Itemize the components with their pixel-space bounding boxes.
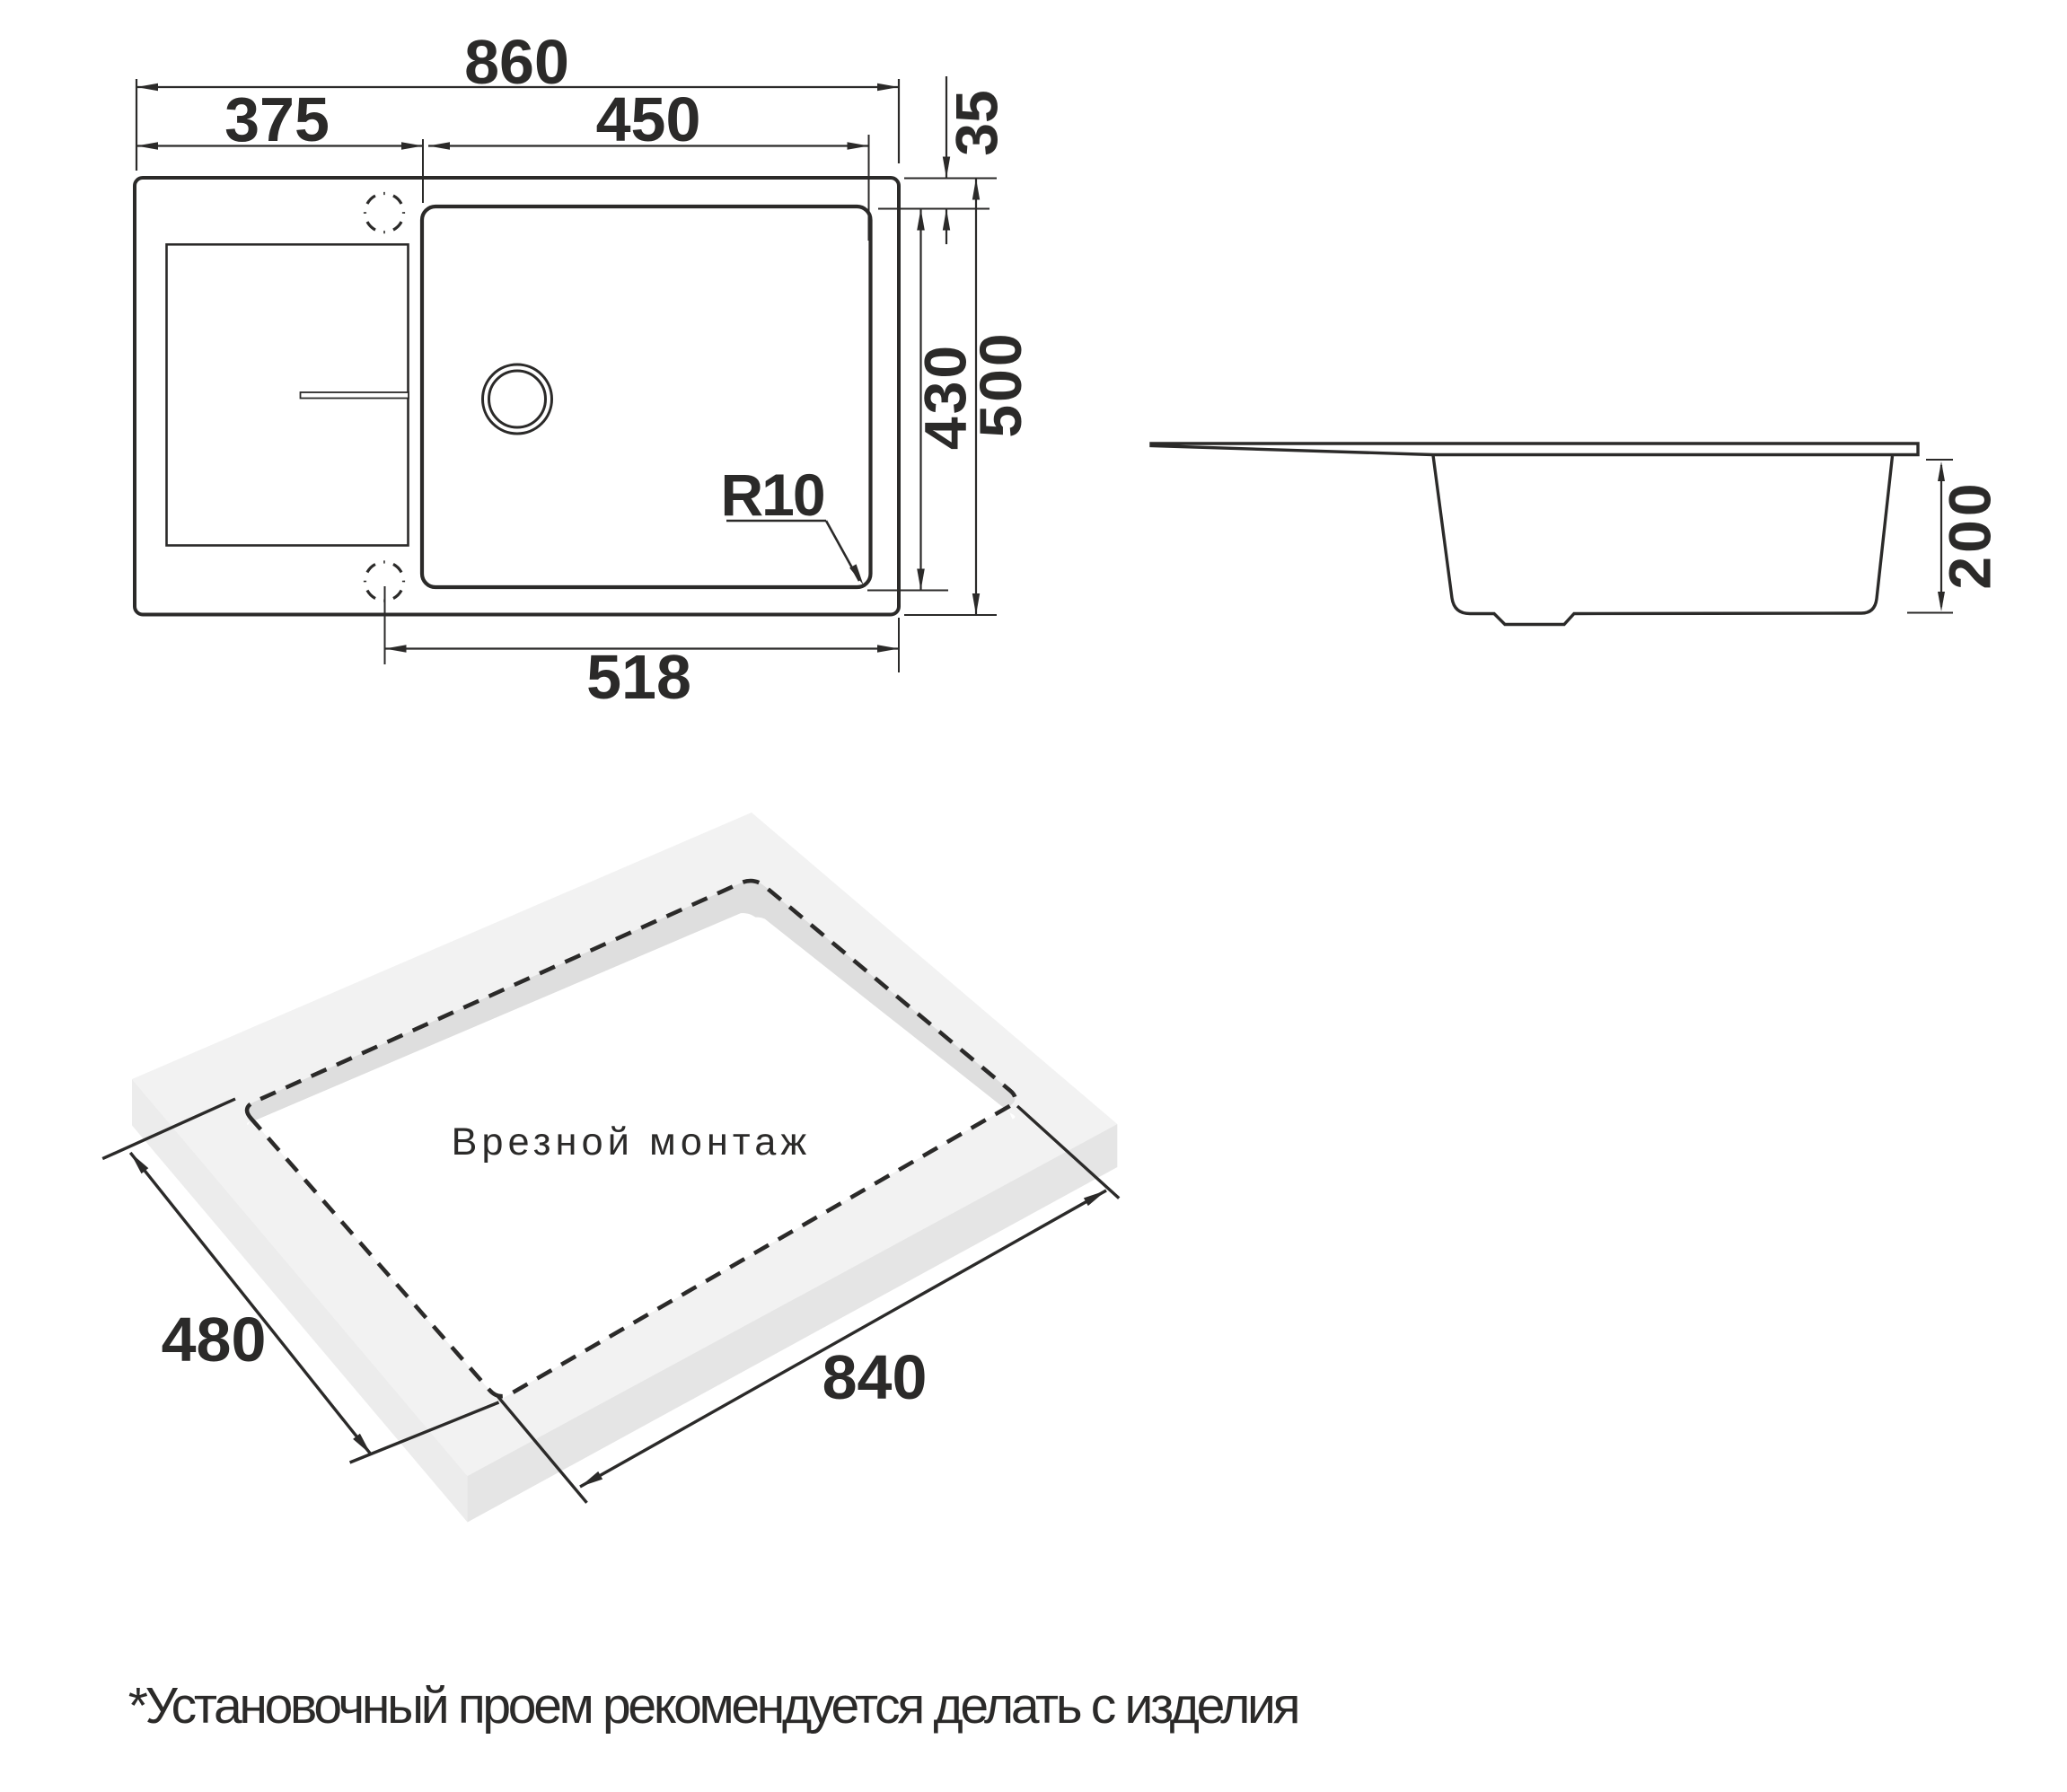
svg-text:860: 860 xyxy=(464,27,569,97)
svg-text:375: 375 xyxy=(224,84,330,154)
svg-text:840: 840 xyxy=(822,1342,928,1412)
svg-text:450: 450 xyxy=(596,84,701,154)
svg-text:R10: R10 xyxy=(720,461,823,528)
svg-text:*Установочный проем рекомендуе: *Установочный проем рекомендуется делать… xyxy=(128,1677,1297,1735)
svg-text:500: 500 xyxy=(967,330,1033,437)
svg-text:200: 200 xyxy=(1937,479,2003,589)
svg-text:480: 480 xyxy=(162,1304,267,1375)
svg-text:518: 518 xyxy=(586,642,691,712)
svg-text:35: 35 xyxy=(944,90,1010,155)
svg-text:Врезной монтаж: Врезной монтаж xyxy=(452,1120,812,1164)
